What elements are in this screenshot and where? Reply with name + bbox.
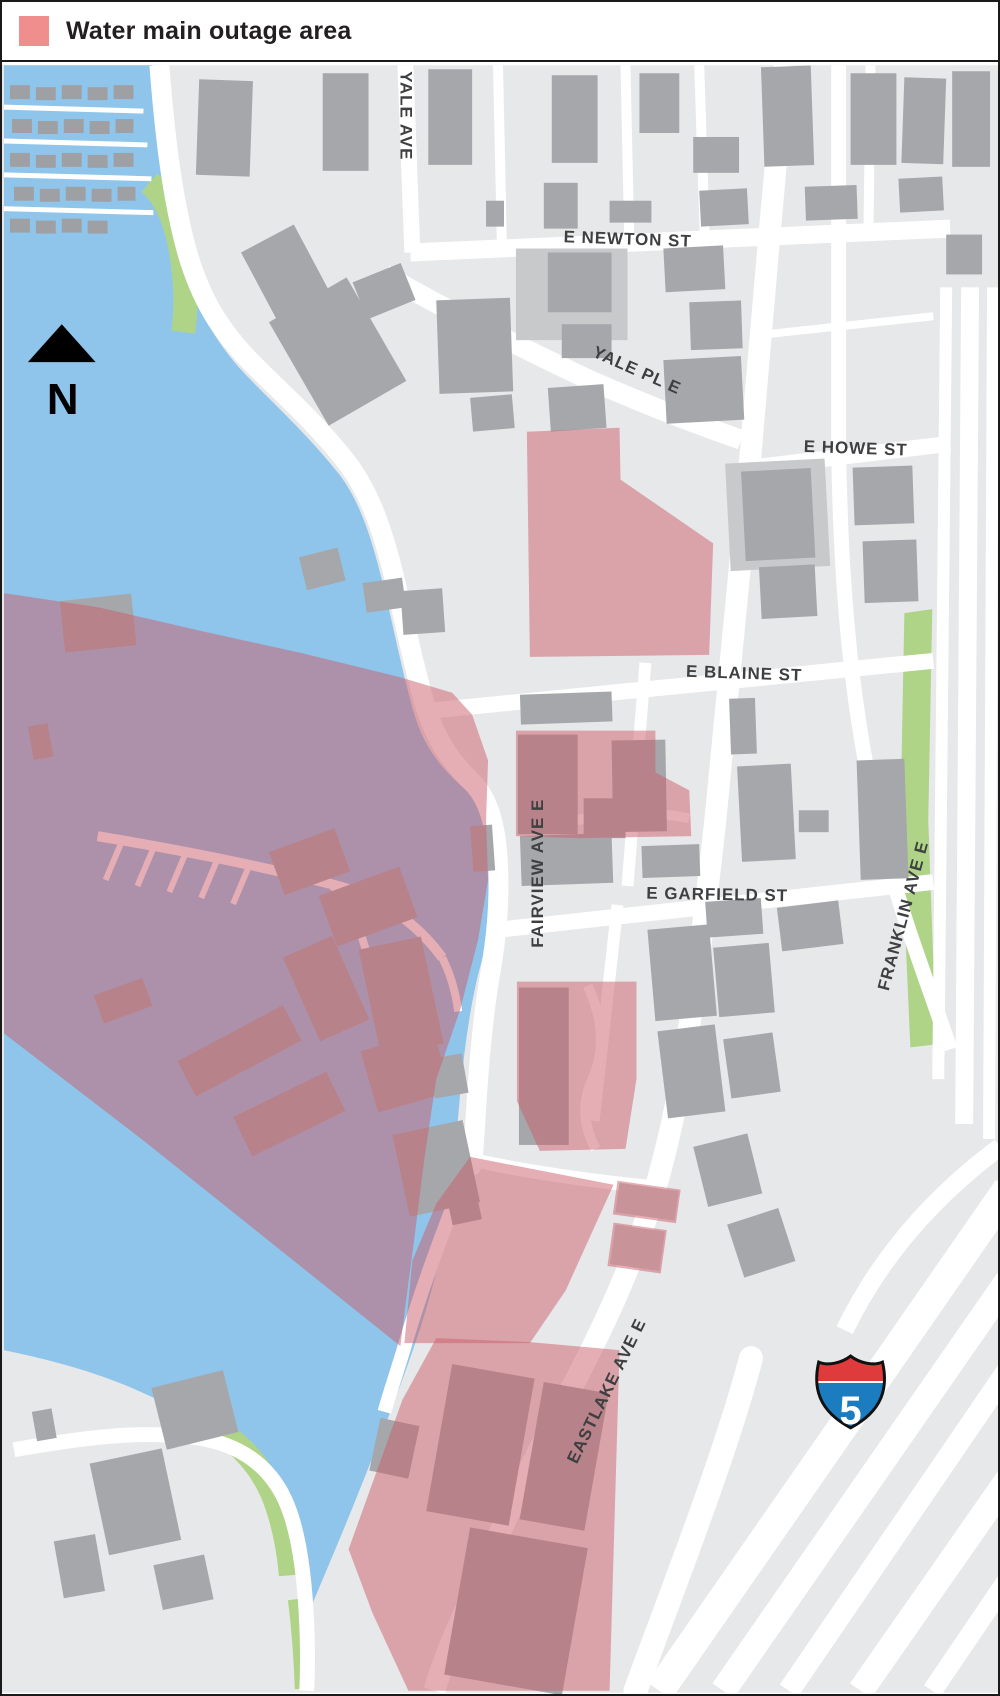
legend: Water main outage area [2, 2, 998, 62]
i5-route-number: 5 [840, 1389, 862, 1433]
city-map: YALE AVE E NEWTON ST YALE PL E E HOWE ST… [2, 62, 998, 1694]
i5-stripe [964, 287, 970, 1124]
outage-color-swatch [19, 16, 49, 46]
road-fairview-south [470, 1094, 477, 1161]
legend-label: Water main outage area [66, 17, 352, 46]
i5-stripe [938, 287, 946, 1079]
street-label-yale-ave: YALE AVE [396, 71, 415, 160]
outage-area-fairview-south [517, 982, 637, 1151]
legend-swatch [18, 15, 50, 47]
map-figure: Water main outage area [0, 0, 1000, 1696]
street-label-e-howe-st: E HOWE ST [804, 437, 909, 460]
north-label: N [47, 375, 79, 424]
street-label-e-garfield-st: E GARFIELD ST [646, 884, 788, 905]
street-label-fairview-ave-e: FAIRVIEW AVE E [528, 799, 547, 948]
outage-area-small-block [607, 1223, 666, 1274]
street-label-e-blaine-st: E BLAINE ST [686, 662, 803, 685]
i5-stripe [989, 287, 993, 1139]
